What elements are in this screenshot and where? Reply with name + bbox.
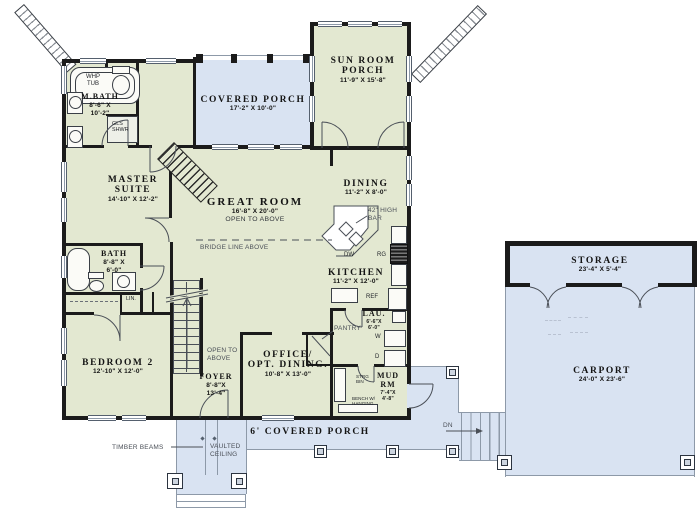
room-name: CARPORT — [573, 366, 631, 376]
door-arc — [140, 266, 164, 290]
pantry-note: PANTRY — [334, 325, 361, 333]
room-dims: 4'-8" — [382, 396, 394, 402]
vaulted-ceiling-note: VAULTED CEILING — [210, 443, 240, 459]
room-dims: 24'-0" X 23'-6" — [579, 376, 625, 384]
room-name: 6' COVERED PORCH — [250, 427, 370, 437]
porch-pier — [386, 445, 399, 458]
room-name: KITCHEN — [328, 268, 384, 278]
porch-pier — [446, 366, 459, 379]
room-dims: 11'-2" X 8'-0" — [345, 189, 387, 197]
whirlpool-label: WHP TUB — [86, 74, 100, 88]
room-name: STORAGE — [571, 256, 629, 266]
down-note: DN — [443, 422, 453, 430]
room-dims: 11'-2" X 12'-0" — [333, 278, 379, 286]
glass-shower-label: GLS SHWR — [112, 121, 128, 133]
note-line: VAULTED — [210, 443, 240, 451]
room-dims: 17'-2" X 10'-0" — [230, 105, 276, 113]
timber-beams-note: TIMBER BEAMS — [112, 444, 164, 452]
washer-label: W — [375, 334, 381, 341]
room-label-sun-room: SUN ROOM PORCH 11'-9" X 15'-8" — [331, 56, 396, 85]
room-dims: 6'-0" — [106, 267, 121, 275]
room-name: RM — [380, 381, 395, 390]
room-label-bath: BATH 8'-8" X 6'-0" — [101, 250, 127, 274]
note-line: ABOVE — [207, 355, 237, 363]
room-dims: 16'-8" X 20'-0" — [232, 208, 278, 216]
room-name: MASTER — [108, 175, 158, 185]
fixture-line: BIN — [356, 379, 369, 384]
room-label-laundry: LAU. 6'-6"X 6'-0" — [363, 310, 386, 331]
room-label-kitchen: KITCHEN 11'-2" X 12'-0" — [328, 268, 384, 286]
fixture-line: TUB — [86, 81, 100, 88]
room-name: DINING — [344, 179, 389, 189]
door-arc — [145, 218, 169, 242]
room-name: SUN ROOM — [331, 56, 396, 66]
storage-bin-label: STRG BIN — [356, 374, 369, 385]
room-name: M.BATH — [81, 93, 119, 102]
door-arc — [150, 146, 176, 172]
room-label-front-porch: 6' COVERED PORCH — [250, 427, 370, 437]
note-line: 42" HIGH — [368, 207, 397, 215]
door-arc — [322, 122, 348, 148]
fixture-line: SHWR — [112, 127, 128, 133]
room-label-carport: CARPORT 24'-0" X 23'-6" — [573, 366, 631, 384]
room-name: COVERED PORCH — [201, 95, 306, 105]
room-label-dining: DINING 11'-2" X 8'-0" — [344, 179, 389, 197]
note-line: CEILING — [210, 451, 240, 459]
room-label-office: OFFICE/ OPT. DINING. 10'-8" X 13'-0" — [248, 350, 329, 379]
linen-label: LIN. — [126, 296, 136, 302]
bar-note: 42" HIGH BAR — [368, 207, 397, 223]
open-to-above-note: OPEN TO ABOVE — [207, 347, 237, 363]
dryer-label: D — [375, 354, 379, 361]
note-line: OPEN TO — [207, 347, 237, 355]
room-dims: 8'-6" X — [89, 102, 111, 110]
room-dims: 13'-4" — [207, 390, 226, 398]
room-name: PORCH — [342, 66, 384, 76]
room-label-storage: STORAGE 23'-4" X 5'-4" — [571, 256, 629, 274]
note-line: BAR — [368, 215, 397, 223]
door-arc — [409, 384, 433, 408]
room-note: OPEN TO ABOVE — [225, 216, 284, 223]
room-dims: 14'-10" X 12'-2" — [108, 196, 158, 204]
storage-arch — [530, 287, 566, 308]
room-name: GREAT ROOM — [207, 196, 303, 208]
room-dims: 10'-8" X 13'-0" — [265, 371, 311, 379]
stair-arrow — [183, 298, 191, 368]
room-label-foyer: FOYER 8'-8"X 13'-4" — [200, 373, 233, 397]
room-dims: 8'-8" X — [103, 259, 125, 267]
room-dims: 6'-0" — [368, 325, 380, 331]
room-name: BATH — [101, 250, 127, 259]
bench-label: BENCH W/ HANGING — [352, 396, 375, 407]
bridge-line-note: BRIDGE LINE ABOVE — [200, 244, 268, 252]
floor-plan-canvas: COVERED PORCH 17'-2" X 10'-0" SUN ROOM P… — [0, 0, 700, 517]
carport-pier — [497, 455, 512, 470]
room-name: FOYER — [200, 373, 233, 382]
refrigerator-label: REF — [366, 294, 378, 301]
carport-pier — [680, 455, 695, 470]
room-dims: 11'-9" X 15'-8" — [340, 77, 386, 85]
fixture-line: WHP — [86, 74, 100, 81]
door-arc — [94, 315, 120, 341]
room-dims: 23'-4" X 5'-4" — [579, 266, 621, 274]
room-label-master-suite: MASTER SUITE 14'-10" X 12'-2" — [108, 175, 158, 204]
down-arrow-head — [476, 428, 483, 434]
room-label-great-room: GREAT ROOM 16'-8" X 20'-0" OPEN TO ABOVE — [207, 196, 303, 223]
room-name: LAU. — [363, 310, 386, 319]
dishwasher-label: DW — [344, 252, 354, 259]
storage-arch — [622, 287, 658, 308]
fixture-line: HANGING — [352, 401, 375, 406]
leader — [322, 331, 333, 339]
porch-pier — [314, 445, 327, 458]
room-name: SUITE — [115, 185, 152, 195]
door-arc — [378, 122, 404, 148]
room-label-covered-porch: COVERED PORCH 17'-2" X 10'-0" — [201, 95, 306, 113]
room-dims: 10'-2" — [91, 110, 110, 118]
porch-pier — [231, 473, 247, 489]
room-name: OFFICE/ — [263, 350, 313, 360]
room-label-master-bath: M.BATH 8'-6" X 10'-2" — [81, 93, 119, 117]
range-label: RG — [377, 252, 386, 259]
room-dims: 12'-10" X 12'-0" — [93, 368, 143, 376]
room-name: BEDROOM 2 — [82, 358, 154, 368]
porch-pier — [446, 445, 459, 458]
porch-pier — [167, 473, 183, 489]
room-label-bedroom-2: BEDROOM 2 12'-10" X 12'-0" — [82, 358, 154, 376]
room-dims: 8'-8"X — [206, 382, 226, 390]
room-name: OPT. DINING. — [248, 360, 329, 370]
room-label-mud-room: MUD RM 7'-4"X 4'-8" — [377, 372, 399, 402]
